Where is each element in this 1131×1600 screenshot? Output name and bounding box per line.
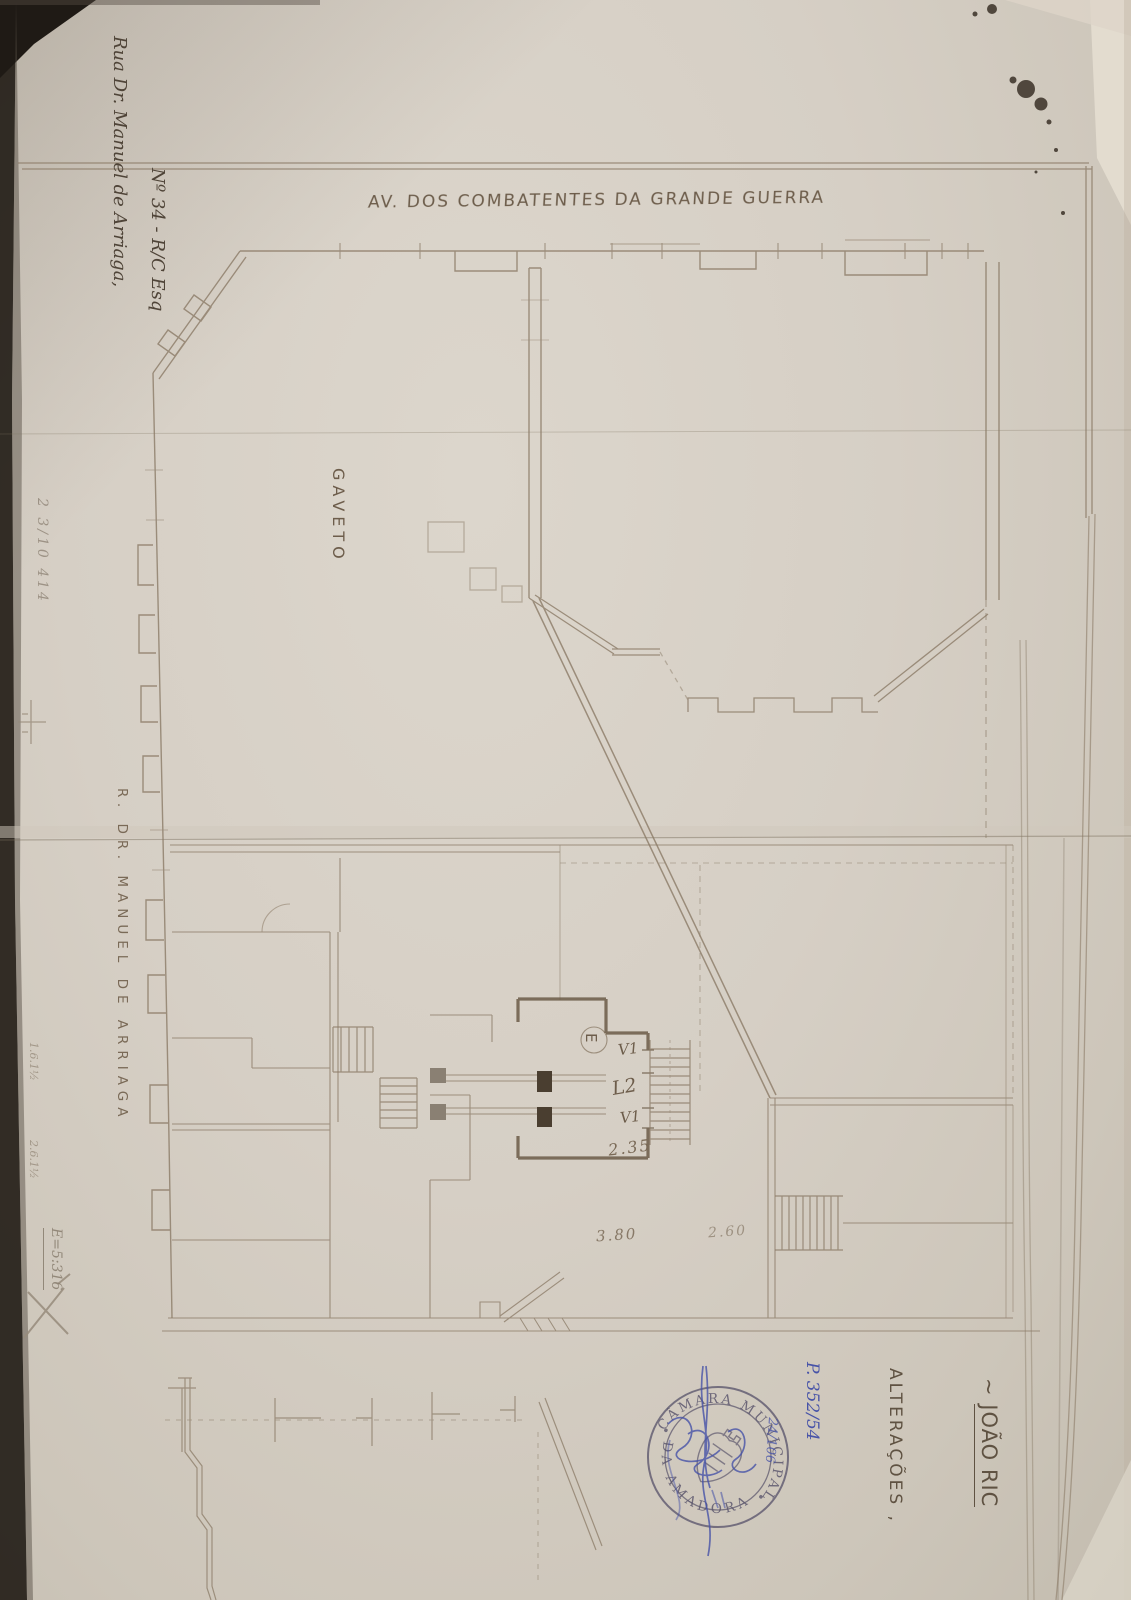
address-note-line1: Rua Dr. Manuel de Arriaga, <box>108 36 131 287</box>
paper-creases <box>0 430 1131 1600</box>
opening-top-label: V1 <box>617 1039 639 1059</box>
dim-span-left: 3.80 <box>595 1225 638 1246</box>
pencil-small-note-2: 2.6.1½ <box>26 1140 40 1179</box>
dim-span-right: 2.60 <box>707 1223 747 1242</box>
owner-note: ~ JOÃO RIC <box>976 1378 1002 1507</box>
room-letter-label: E <box>581 1033 600 1042</box>
stairs <box>333 1027 843 1250</box>
opening-mid-label: L2 <box>610 1074 638 1100</box>
process-number-note: P. 352/54 <box>801 1362 822 1441</box>
ink-stains <box>973 4 1066 215</box>
owner-name: JOÃO RIC <box>974 1404 1001 1507</box>
pencil-small-note-1: 1.6.1½ <box>26 1042 40 1081</box>
street-left-label: R. DR. MANUEL DE ARRIAGA <box>113 788 130 1122</box>
wall-columns <box>430 1068 552 1127</box>
municipal-stamp: CÂMARA MUNICIPAL DA AMADORA <box>620 1359 817 1555</box>
scanned-blueprint-page: CÂMARA MUNICIPAL DA AMADORA AV. DOS COMB… <box>0 0 1131 1600</box>
opening-bottom-label: V1 <box>619 1107 641 1127</box>
floor-plan-lower <box>162 845 1040 1331</box>
alteracoes-note: ALTERAÇÕES , <box>884 1368 905 1524</box>
address-note-line2: Nº 34 - R/C Esq <box>146 168 169 311</box>
pencil-scale-note: E=5:316 <box>44 1228 65 1290</box>
courtyard-lines <box>428 522 988 1098</box>
gaveto-label: GAVETO <box>328 468 348 564</box>
blueprint-drawing: CÂMARA MUNICIPAL DA AMADORA <box>0 0 1131 1600</box>
stamp-coat-of-arms <box>684 1422 750 1493</box>
street-lines <box>18 163 1095 1600</box>
lower-block-lines <box>165 1378 602 1600</box>
building-outline-upper <box>138 240 999 1318</box>
blue-date-note: 24/106 <box>761 1417 780 1464</box>
scan-edge-shadows <box>0 0 1131 1600</box>
owner-prefix: ~ <box>977 1378 1001 1397</box>
pencil-note-top: 2 3/10 414 <box>33 498 51 604</box>
